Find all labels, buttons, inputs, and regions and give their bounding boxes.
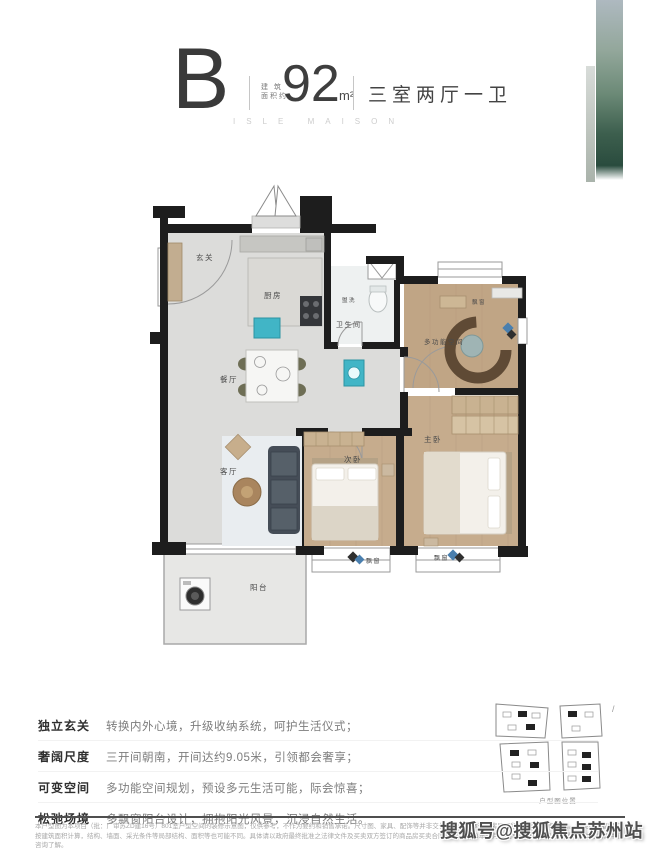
blanket: [424, 452, 460, 534]
headboard: [506, 452, 512, 534]
label-bay-window: 飘窗: [366, 557, 381, 565]
area-unit: m²: [339, 88, 354, 103]
kitchen-counter: [240, 236, 324, 338]
label-multifunction: 多功能空间: [424, 337, 464, 346]
layout-description: 三室两厅一卫: [368, 80, 512, 107]
nightstand: [382, 464, 394, 476]
dining-set: [238, 350, 306, 402]
feature-row: 奢阔尺度 三开间朝南，开间达约9.05米，引领都会奢享；: [38, 741, 598, 772]
header-divider: [353, 76, 354, 110]
label-bay-window: 飘窗: [472, 298, 486, 306]
feature-label: 可变空间: [38, 779, 90, 796]
toilet: [369, 286, 387, 312]
blanket: [312, 506, 378, 540]
feature-label: 独立玄关: [38, 717, 90, 734]
chair: [461, 335, 483, 357]
label-bay-window: 飘窗: [434, 554, 449, 562]
label-kitchen: 厨房: [264, 290, 282, 300]
label-bedroom2: 次卧: [344, 454, 362, 464]
label-balcony: 阳台: [250, 582, 268, 592]
label-master: 主卧: [424, 434, 442, 444]
floorplan-drawing: 玄关 厨房 盥洗 卫生间 餐厅 客厅 阳台 次卧 主卧 多功能空间 飘窗 飘窗 …: [150, 175, 535, 655]
area-value: 92: [282, 58, 340, 110]
green-glass-strip: [596, 0, 623, 180]
label-entry: 玄关: [196, 252, 214, 262]
feature-description: 三开间朝南，开间达约9.05米，引领都会奢享；: [106, 749, 358, 765]
feature-label: 奢阔尺度: [38, 748, 90, 765]
watermark: 搜狐号@搜狐焦点苏州站: [440, 817, 643, 843]
label-dining: 餐厅: [220, 375, 238, 384]
stove: [300, 296, 322, 326]
bench: [424, 538, 438, 546]
header-divider: [249, 76, 250, 110]
keyplate-slash: /: [612, 704, 615, 714]
kitchen-sink: [254, 318, 280, 338]
window-multifunction-right: [518, 318, 527, 344]
label-vanity: 盥洗: [342, 296, 356, 304]
feature-row: 独立玄关 转换内外心境，升级收纳系统，呵护生活仪式；: [38, 710, 598, 741]
shoe-cabinet: [168, 243, 182, 301]
feature-row: 可变空间 多功能空间规划，预设多元生活可能，际会惊喜；: [38, 772, 598, 803]
feature-description: 转换内外心境，升级收纳系统，呵护生活仪式；: [106, 718, 358, 734]
feature-list: 独立玄关 转换内外心境，升级收纳系统，呵护生活仪式； 奢阔尺度 三开间朝南，开间…: [38, 710, 598, 833]
label-bathroom: 卫生间: [336, 320, 362, 329]
series-caption: ISLE MAISON: [233, 117, 405, 126]
basin-bowl: [348, 367, 360, 379]
shelf: [492, 288, 522, 298]
grey-glass-strip: [586, 66, 595, 182]
wardrobe-bedroom2: [304, 432, 364, 446]
label-living: 客厅: [220, 466, 238, 476]
entry-door: [252, 186, 300, 228]
feature-description: 多功能空间规划，预设多元生活可能，际会惊喜；: [106, 780, 370, 796]
dining-table: [246, 350, 298, 402]
plan-letter: B: [172, 36, 229, 122]
living-set: [222, 434, 302, 546]
washing-machine: [180, 578, 210, 610]
cabinet: [440, 296, 466, 308]
floorplan-ad-page: B 建 筑 面积约 92 m² 三室两厅一卫 ISLE MAISON: [0, 0, 660, 855]
